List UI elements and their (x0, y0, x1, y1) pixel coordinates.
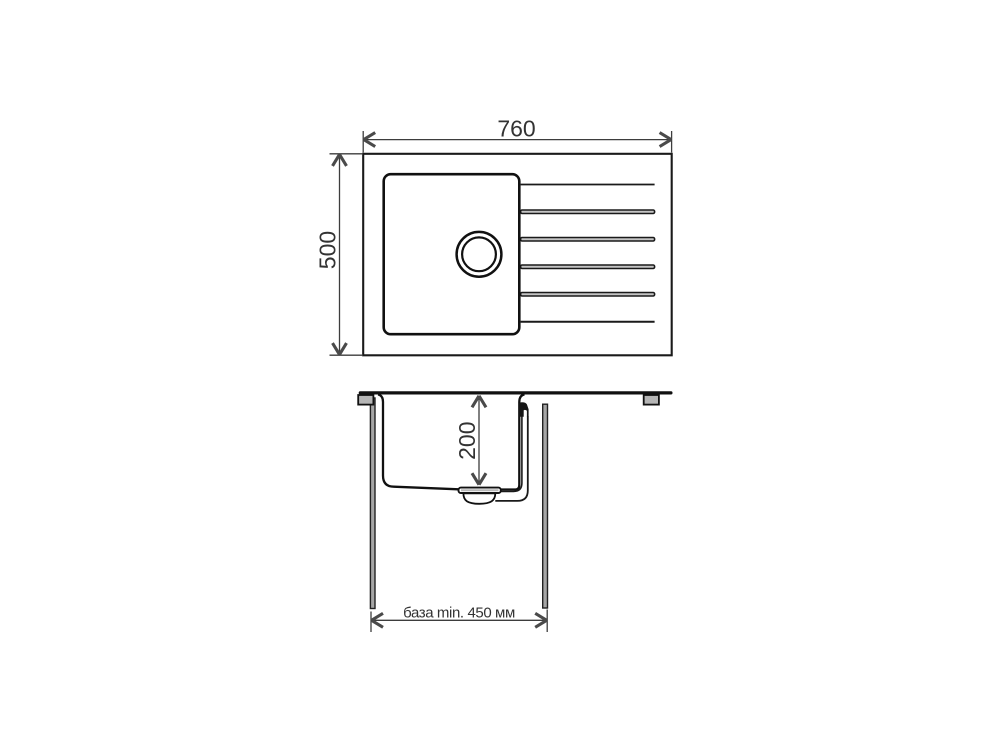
svg-text:200: 200 (454, 422, 480, 460)
svg-text:760: 760 (497, 116, 535, 142)
svg-text:база min. 450 мм: база min. 450 мм (403, 605, 515, 622)
svg-text:500: 500 (315, 231, 341, 269)
